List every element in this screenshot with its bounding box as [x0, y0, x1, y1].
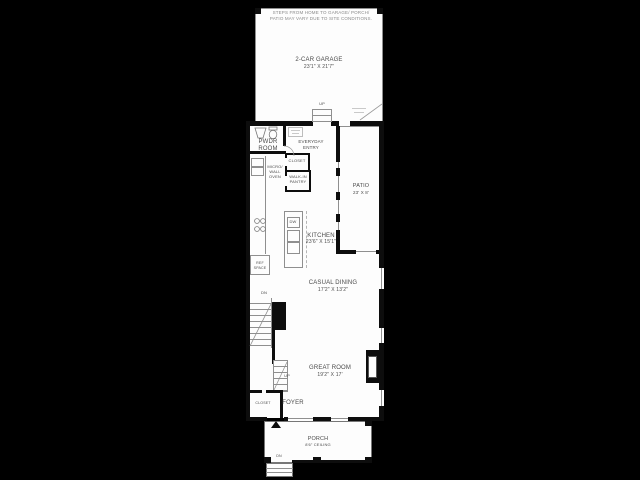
dw-label: DW — [290, 220, 297, 225]
foyer-title: FOYER — [282, 400, 303, 407]
garage-title: 2-CAR GARAGE — [295, 57, 342, 64]
stairs-up-label: UP — [284, 374, 290, 379]
site-note-line1: STEPS FROM HOME TO GARAGE/ PORCH/ — [273, 10, 370, 15]
great-room-title: GREAT ROOM — [309, 365, 351, 372]
everyday-entry-label-line1: EVERYDAY — [298, 139, 323, 144]
site-note-line2: PATIO MAY VARY DUE TO SITE CONDITIONS. — [270, 16, 372, 21]
patio-dims: 23' X 8' — [353, 190, 369, 195]
ref-label-line1: REF — [256, 261, 264, 265]
great-room-dims: 19'2" X 17' — [317, 373, 342, 379]
cooktop-burner-icon — [255, 227, 260, 232]
casual-dining-dims: 17'2" X 13'2" — [318, 288, 348, 294]
ref-label-line2: SPACE — [254, 266, 267, 270]
pwdr-toilet-tank-icon — [269, 127, 277, 130]
front-door-triangle-icon — [271, 421, 281, 428]
casual-dining-title: CASUAL DINING — [309, 280, 357, 287]
pwdr-toilet-bowl-icon — [269, 130, 277, 138]
pwdr-door-arc — [284, 146, 294, 156]
floorplan-canvas: STEPS FROM HOME TO GARAGE/ PORCH/ PATIO … — [0, 0, 640, 480]
pwdr-room-label-line2: ROOM — [258, 146, 277, 153]
cooktop-burner-icon — [255, 219, 260, 224]
pwdr-room-label-line1: PWDR — [259, 139, 278, 146]
garage-dims: 23'1" X 21'7" — [304, 65, 334, 71]
garage-up-label: UP — [319, 102, 325, 107]
stairs-down-diagonal — [250, 302, 272, 346]
cooktop-burner-icon — [261, 227, 266, 232]
pantry-label-line2: PANTRY — [290, 180, 307, 185]
porch-dn-label: DN — [276, 454, 282, 458]
cooktop-burner-icon — [261, 219, 266, 224]
everyday-entry-label-line2: ENTRY — [303, 145, 319, 150]
closet-label: CLOSET — [289, 159, 306, 164]
porch-ceiling: 8'6" CEILING — [305, 443, 331, 448]
patio-title: PATIO — [353, 183, 369, 189]
garage-door-swing-line — [360, 104, 382, 120]
foyer-closet-label: CLOSET — [255, 401, 270, 405]
stairs-dn-label: DN — [261, 291, 267, 296]
kitchen-dims: 23'6" X 15'1" — [306, 240, 336, 246]
pwdr-sink-icon — [255, 128, 266, 138]
oven-label-line3: OVEN — [269, 175, 281, 180]
